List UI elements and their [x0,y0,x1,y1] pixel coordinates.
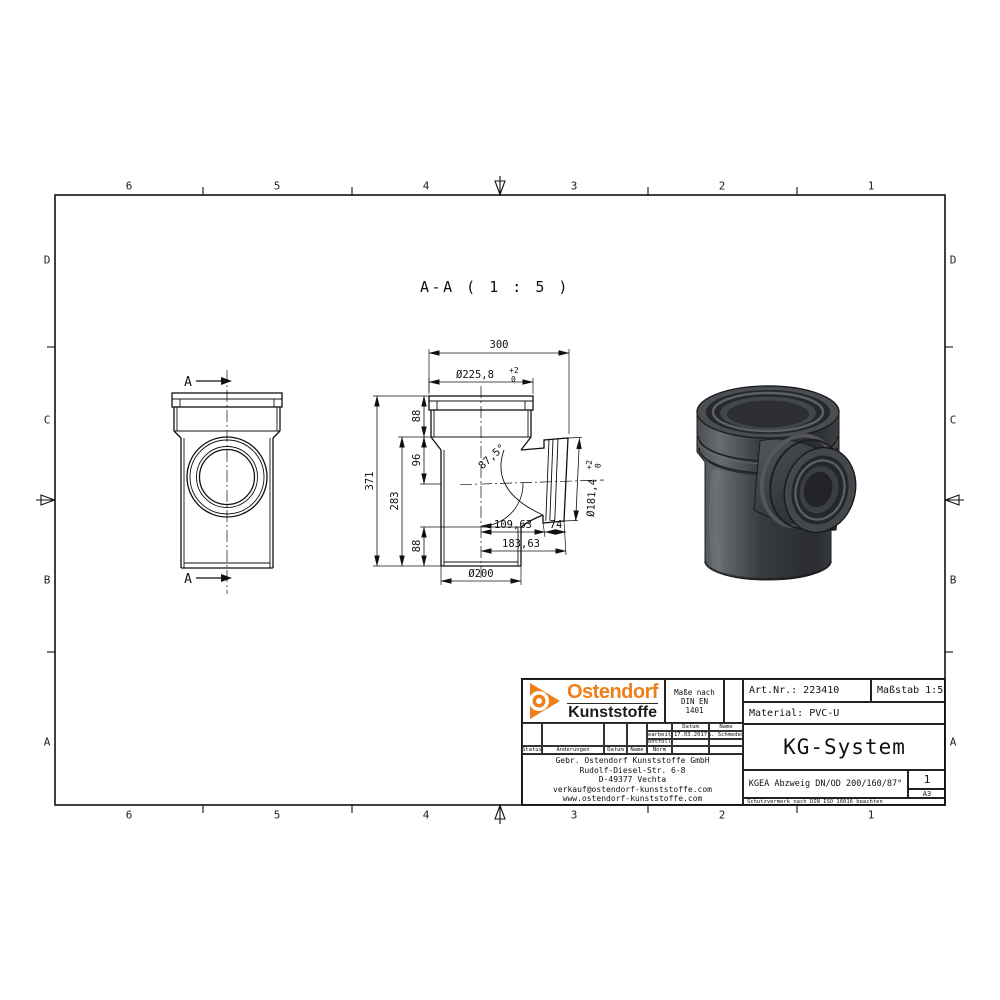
dim-branch-socket-depth: 74 [550,519,563,531]
rev-col-name: Name [709,723,743,731]
dim-height-branch: 283 [389,492,401,511]
dim-overall-width: 300 [490,339,509,351]
rev-status-label: Status [522,746,542,754]
front-view: A A [172,370,282,594]
address-line: D-49377 Vechta [599,775,666,785]
standard-line: Maße nach [674,688,715,697]
dim-socket-od: Ø225,8 [456,369,494,381]
standard-line: DIN EN [681,697,708,706]
system-title: KG-System [743,724,946,770]
dim-seg-bottom: 88 [411,540,423,553]
dim-seg-mid: 96 [411,454,423,467]
logo-line1: Ostendorf [567,682,658,702]
article-number: Art.Nr.: 223410 [743,679,871,702]
dim-branch-offset: 109,63 [494,519,532,531]
address-line: www.ostendorf-kunststoffe.com [563,794,703,804]
standard-line: 1401 [685,706,703,715]
section-view: 300 Ø225,8 +2 0 371 283 88 96 88 87,5° Ø… [364,339,604,585]
section-mark-label-top: A [184,375,192,390]
dim-branch-od: Ø181,4 [585,479,599,518]
rev-aenderungen-label: Änderungen [542,746,604,754]
drawing-sheet: 6 5 4 3 2 1 6 5 4 3 2 1 D C B A D C B A [0,0,1000,1000]
address-line: Gebr. Ostendorf Kunststoffe GmbH [555,756,709,766]
standard-cell: Maße nach DIN EN 1401 [665,679,724,723]
company-logo: Ostendorf Kunststoffe [522,679,665,723]
rev-kontroll-label: Kontroll. [647,739,672,747]
revision-table: Status Änderungen Datum Name Datum Name … [522,723,743,754]
address-line: Rudolf-Diesel-Str. 6-8 [580,766,686,776]
rev-bearb-label: Bearbeit. [647,731,672,739]
rev-col-datum: Datum [672,723,709,731]
sheet-format: A3 [908,789,946,798]
rev-norm-label: Norm [647,746,672,754]
address-line: verkauf@ostendorf-kunststoffe.com [553,785,712,795]
logo-line2: Kunststoffe [567,703,658,721]
rev-datum-label: Datum [604,746,627,754]
dim-overall-height: 371 [364,472,376,491]
section-view-label: A-A ( 1 : 5 ) [420,278,570,296]
rev-name-label: Name [627,746,647,754]
company-address: Gebr. Ostendorf Kunststoffe GmbH Rudolf-… [522,754,743,806]
material-cell: Material: PVC-U [743,702,946,724]
render-3d [697,386,867,580]
dim-branch-total: 183,63 [502,538,540,550]
scale-cell: Maßstab 1:5 [871,679,946,702]
dim-seg-top: 88 [411,410,423,423]
dim-socket-od-tol-plus: +2 [509,366,519,375]
dim-branch-od-tol-plus: +2 [584,460,594,470]
title-block: Ostendorf Kunststoffe Maße nach DIN EN 1… [521,678,945,805]
dim-pipe-od: Ø200 [468,568,493,580]
section-arrow-icon [196,377,232,582]
sheet-number: 1 [908,770,946,789]
protection-note: Schutzvermerk nach DIN ISO 16016 beachte… [743,798,946,806]
rev-bearb-datum: 17.03.2017 [672,731,709,739]
dim-socket-od-tol-minus: 0 [511,375,516,384]
rev-bearb-name: A. Schmedes [709,731,743,739]
part-description: KGEA Abzweig DN/OD 200/160/87° [743,770,908,798]
dim-branch-od-tol-minus: 0 [594,463,603,468]
section-mark-label-bottom: A [184,572,192,587]
ostendorf-logo-icon [529,681,563,721]
drawing-canvas: A-A ( 1 : 5 ) A A [0,0,1000,1000]
empty-cell [724,679,743,723]
